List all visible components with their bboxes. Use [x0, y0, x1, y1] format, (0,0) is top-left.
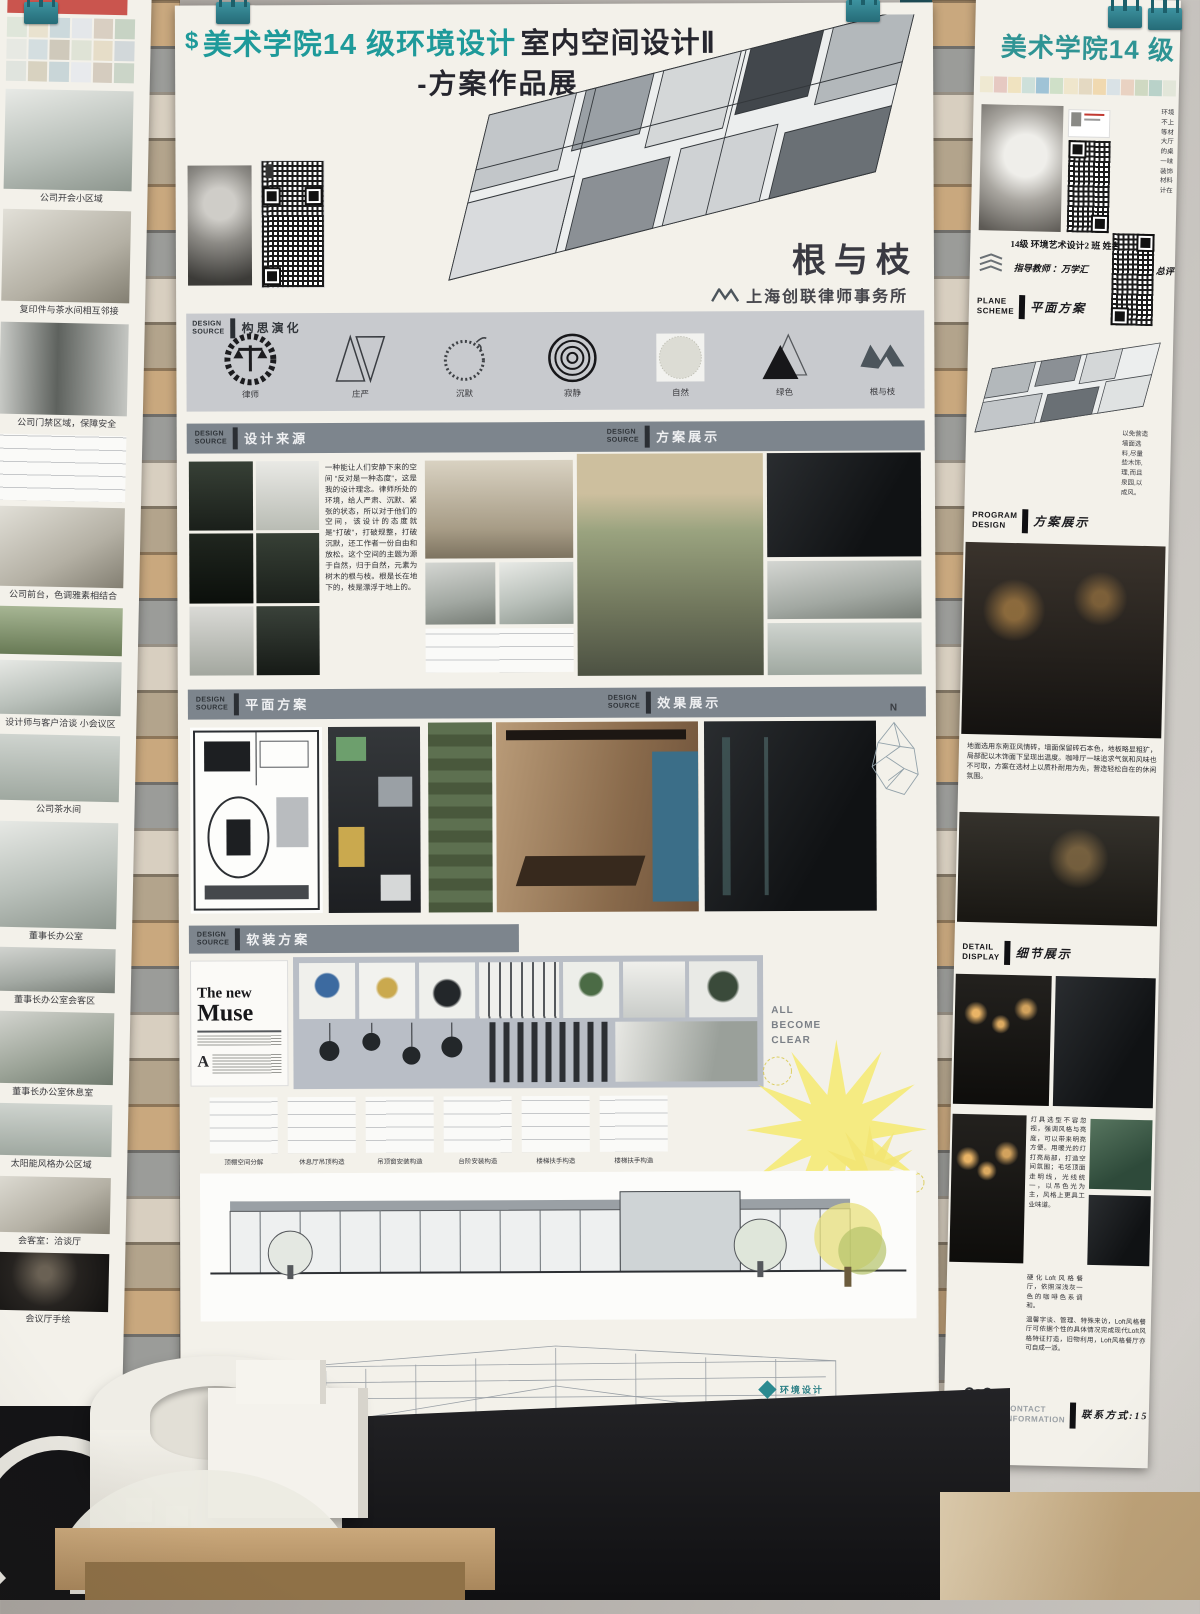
loft-paragraph: 硬化Loft风格餐厅，依照深浅灰一色的咖啡色系调和。 — [1026, 1273, 1083, 1314]
section-en: CONTACT INFORMATION — [1004, 1404, 1066, 1425]
mini-portrait — [1071, 112, 1081, 126]
render-caption: 公司门禁区域，保障安全 — [0, 416, 137, 430]
binder-clip — [1148, 8, 1182, 30]
render-caption: 复印件与茶水间相互邻接 — [0, 304, 139, 318]
detail-floorplan-strip — [328, 727, 421, 913]
class-info-line: 14级 环境艺术设计2 班 姓名 — [1010, 237, 1121, 252]
plan-block — [378, 777, 412, 807]
wireframe-deer-diagram — [864, 716, 926, 802]
render-thumb — [0, 820, 118, 929]
concept-icon-label: 庄严 — [335, 389, 387, 400]
id-card-photo — [1069, 110, 1110, 137]
plane-scheme-header: PLANE SCHEME 平面方案 — [977, 294, 1087, 320]
client-row: 上海创联律师事务所 — [711, 282, 908, 307]
plan-diagram-thumb — [0, 433, 126, 502]
render-thumb — [0, 1175, 111, 1234]
render-thumb — [499, 562, 573, 624]
section-en: DESIGN SOURCE — [608, 695, 640, 711]
render-thumb — [1, 209, 131, 304]
shelf-unit-item — [489, 1022, 609, 1083]
logo-text: 环境设计 — [780, 1383, 824, 1396]
right-poster: 美术学院14 级 环境 不上 等材 大厅 的桌 一味 装饰 材料 计在 CONC… — [943, 0, 1181, 1468]
decor-item — [419, 962, 475, 1018]
tree-photo — [189, 606, 253, 676]
detail-photo — [1053, 976, 1156, 1108]
render-collage-1 — [423, 452, 924, 676]
render-thumb — [0, 505, 125, 588]
concept-icon-label: 自然 — [655, 387, 707, 398]
concept-icon-label: 根与枝 — [855, 386, 911, 397]
plant-item — [689, 961, 757, 1017]
binder-clip — [24, 2, 58, 24]
detail-diagram — [210, 1097, 278, 1153]
render-caption: 公司开会小区域 — [1, 192, 141, 206]
concept-icon-label: 律师 — [225, 389, 277, 400]
magazine-title-line1: The new — [197, 987, 281, 1001]
header-bar — [645, 426, 650, 448]
section-en: DETAIL DISPLAY — [962, 942, 1000, 962]
moodboard-panel — [293, 955, 764, 1089]
pillow-item — [299, 963, 355, 1019]
render-thumb — [425, 460, 573, 559]
roots-branches-logo-icon — [858, 338, 906, 372]
edison-bulb-photo — [953, 974, 1052, 1106]
section-en: DESIGN SOURCE — [196, 696, 228, 712]
diamond-logo-icon — [758, 1380, 776, 1398]
detail-diagram — [288, 1097, 356, 1153]
section-zh: 方案展示 — [656, 430, 720, 443]
section-band-2: DESIGN SOURCE 平面方案 DESIGN SOURCE 效果展示 — [188, 686, 926, 719]
dark-corridor-render — [704, 721, 877, 912]
plan-block — [338, 827, 364, 867]
detail-diagram — [600, 1096, 668, 1152]
plan-block — [381, 875, 411, 901]
floorplan-drawing — [190, 727, 323, 914]
contact-header: CONTACT INFORMATION 联系方式:15101240 — [1004, 1401, 1181, 1431]
grade-label: 总评 — [1156, 264, 1174, 277]
plan-block — [336, 737, 366, 761]
glass-reflection — [764, 737, 769, 895]
section-header-softdeco: DESIGN SOURCE 软装方案 — [197, 928, 310, 950]
magazine-bodytext-lines — [212, 1053, 282, 1073]
client-name: 上海创联律师事务所 — [746, 282, 908, 307]
pillow-item — [359, 963, 415, 1019]
render-thumb — [0, 1103, 112, 1158]
section-en: DESIGN SOURCE — [607, 429, 639, 445]
binder-clip — [1108, 6, 1142, 28]
diagram-caption: 楼梯扶手构造 — [522, 1158, 590, 1166]
wood-plank — [85, 1562, 465, 1600]
section-zh: 平面方案 — [1030, 301, 1086, 314]
binder-clip — [216, 2, 250, 24]
section-en: PROGRAM DESIGN — [972, 510, 1018, 530]
quiet-rings-icon — [546, 332, 598, 384]
section-en: DESIGN SOURCE — [197, 931, 229, 947]
mini-text-line — [1084, 113, 1104, 115]
render-thumb — [4, 89, 134, 192]
contact-phone: 联系方式:15101240 — [1081, 1411, 1181, 1423]
chair-item — [623, 961, 685, 1017]
render-caption: 董事长办公室 — [0, 929, 126, 943]
chevron-stack-icon — [978, 252, 1004, 275]
tree-photo-grid — [189, 461, 320, 676]
brand-glyph: $ — [185, 28, 198, 55]
designer-photo — [979, 104, 1064, 232]
section-zh: 设计来源 — [244, 432, 308, 445]
render-thumb — [0, 606, 123, 657]
render-caption: 董事长办公室会客区 — [0, 993, 125, 1007]
section-en: DESIGN SOURCE — [195, 430, 227, 446]
side-text-fragments-2: 以免营造 墙面选 料,尽量 些木饰, 理,而且 泉园,以 成风。 — [1121, 429, 1169, 498]
green-wall-render — [428, 722, 493, 912]
render-caption: 公司茶水间 — [0, 803, 129, 817]
render-thumb — [767, 560, 921, 619]
program-design-header: PROGRAM DESIGN 方案展示 — [972, 508, 1090, 535]
section-header-scheme-display: DESIGN SOURCE 方案展示 — [607, 425, 720, 447]
magazine-paragraph: A — [197, 1053, 281, 1073]
center-poster: $ 美术学院14 级环境设计 室内空间设计Ⅱ -方案作品展 14级 环境艺术设计… — [175, 2, 939, 1457]
firm-logo-icon — [711, 288, 739, 302]
concept-band: DESIGN SOURCE 构思演化 — [186, 310, 924, 411]
tree-photo — [256, 606, 320, 676]
photo-canvas: { "left_column":{"label":"INTERIOR DESIG… — [0, 0, 1200, 1600]
loft-paragraph-2: 温馨字谈、管理、特殊来访，Loft风格餐厅可依据个性的具体情况完成现代Loft风… — [1025, 1315, 1146, 1378]
header-bar — [1019, 295, 1026, 319]
render-thumb — [0, 734, 120, 803]
header-bar — [234, 693, 239, 715]
render-thumb — [426, 628, 574, 673]
detail-diagram — [522, 1096, 590, 1152]
render-thumb — [768, 622, 922, 675]
magazine-cover: The new Muse A — [191, 961, 288, 1085]
loft-cafe-render — [961, 542, 1165, 738]
section-zh: 细节展示 — [1016, 947, 1072, 960]
header-bar — [1022, 509, 1029, 533]
lighting-paragraph: 灯具选型不容忽视，强调风格与亮度，可以带来明亮方便。用暖光的灯打亮局部，打造空间… — [1027, 1116, 1086, 1267]
section-header-design-source: DESIGN SOURCE 设计来源 — [195, 427, 308, 449]
model-roof-block — [236, 1360, 320, 1404]
pendant-lamps-group — [301, 1022, 481, 1083]
design-intro-text: 一种能让人们安静下来的空间 “反对是一种态度”，这是我的设计理念。律师所处的环境… — [325, 463, 418, 675]
tree-photo — [189, 461, 253, 531]
render-thumb — [0, 946, 116, 993]
diagram-caption: 台阶安装构造 — [444, 1158, 512, 1166]
glass-reflection — [722, 737, 731, 895]
diagram-caption: 顶棚空间分解 — [210, 1159, 278, 1167]
detail-diagram — [444, 1096, 512, 1152]
render-caption: 董事长办公室休息室 — [0, 1085, 123, 1099]
material-paragraph: 地面选用东南亚风情砖，墙面保留砖石本色，地板略显粗犷，局部配以木饰面下呈现出温度… — [966, 742, 1157, 810]
solemn-triangles-icon — [334, 333, 386, 385]
render-caption: 会客室：洽谈厅 — [0, 1234, 120, 1248]
render-caption: 设计师与客户洽谈 小会议区 — [0, 717, 130, 731]
plant-item — [563, 962, 619, 1018]
qr-code — [1067, 140, 1111, 233]
render-thumb — [0, 321, 129, 416]
header-bar — [1004, 941, 1011, 965]
material-swatch-grid — [6, 17, 135, 84]
header-bar — [1070, 1403, 1077, 1429]
diagram-caption: 吊顶窗安装构造 — [366, 1159, 434, 1167]
magazine-dropcap: A — [197, 1053, 209, 1073]
lawyer-seal-icon — [224, 333, 276, 385]
section-band-3: DESIGN SOURCE 软装方案 — [189, 924, 519, 953]
detail-display-header: DETAIL DISPLAY 细节展示 — [962, 940, 1072, 966]
green-poster-image — [1089, 1119, 1153, 1190]
section-zh: 效果展示 — [657, 696, 721, 709]
section-en: PLANE SCHEME — [977, 297, 1015, 317]
header-bar — [233, 427, 238, 449]
render-caption: 太阳能风格办公区域 — [0, 1158, 121, 1172]
silence-wreath-icon — [438, 332, 490, 384]
table-surface-right — [940, 1492, 1200, 1600]
detail-photo — [949, 1114, 1026, 1264]
detail-photo — [1087, 1195, 1151, 1266]
atrium-render — [577, 453, 764, 676]
tree-photo — [255, 461, 319, 531]
magazine-rule — [197, 1030, 281, 1032]
student-portrait-photo — [188, 165, 253, 285]
mini-text-line — [1084, 118, 1100, 120]
side-text-fragments: 环境 不上 等材 大厅 的桌 一味 装饰 材料 计在 — [1160, 108, 1178, 196]
shelf-item — [479, 962, 559, 1018]
qr-code — [262, 161, 325, 287]
blue-cabinet — [652, 751, 699, 901]
magazine-title-line2: Muse — [197, 1001, 281, 1025]
project-name: 根与枝 — [792, 232, 918, 282]
concept-icon-label: 绿色 — [759, 387, 811, 398]
render-thumb — [0, 660, 122, 717]
concept-icon-label: 寂静 — [547, 388, 599, 399]
diagram-caption: 楼梯扶手构造 — [600, 1158, 668, 1166]
teacher-info-line: 指导教师 ：万学汇 — [1014, 261, 1089, 276]
cafe-tables-render — [957, 812, 1159, 927]
ceiling-shadow — [506, 729, 686, 740]
detail-diagram — [366, 1097, 434, 1153]
magazine-bodytext-lines — [197, 1035, 281, 1045]
compass-north-label: N — [890, 703, 897, 714]
concept-header-en: DESIGN SOURCE — [192, 320, 224, 336]
green-triangles-icon — [758, 331, 810, 383]
concept-icon-label: 沉默 — [439, 388, 491, 399]
meeting-room-render — [496, 721, 699, 912]
diagram-caption: 休息厅吊顶构造 — [288, 1159, 356, 1167]
pastel-color-strip — [980, 76, 1176, 96]
nature-texture-icon — [654, 331, 706, 383]
section-zh: 软装方案 — [246, 933, 310, 946]
render-thumb — [425, 562, 495, 624]
section-header-effect: DESIGN SOURCE 效果展示 — [608, 691, 721, 713]
render-caption: 公司前台，色调雅素相结合 — [0, 588, 133, 602]
right-poster-title: 美术学院14 级 — [1000, 27, 1175, 68]
render-thumb — [0, 1011, 114, 1086]
person-glyph-icon — [266, 164, 274, 178]
render-thumb — [767, 452, 921, 557]
binder-clip — [846, 0, 880, 22]
tree-photo — [256, 533, 320, 603]
header-bar — [646, 692, 651, 714]
section-zh: 方案展示 — [1033, 515, 1089, 528]
architectural-model — [30, 1290, 500, 1600]
section-band-1: DESIGN SOURCE 设计来源 DESIGN SOURCE 方案展示 — [187, 420, 925, 453]
detail-diagram-row: 顶棚空间分解 休息厅吊顶构造 吊顶窗安装构造 台阶安装构造 楼梯扶手构造 楼梯扶… — [210, 1095, 680, 1177]
header-bar — [235, 928, 240, 950]
section-header-plan: DESIGN SOURCE 平面方案 — [196, 693, 309, 715]
tree-photo — [189, 534, 253, 604]
environment-design-logo: 环境设计 — [761, 1383, 824, 1396]
section-zh: 平面方案 — [245, 698, 309, 711]
meeting-table — [516, 856, 646, 887]
